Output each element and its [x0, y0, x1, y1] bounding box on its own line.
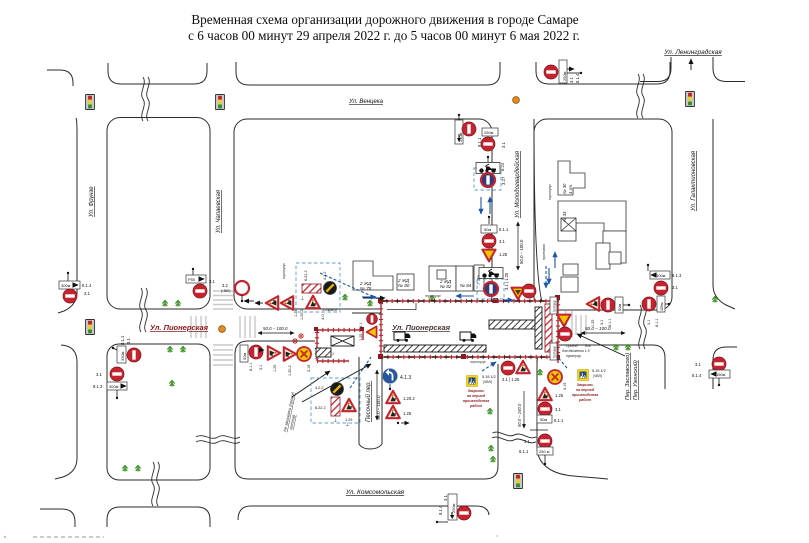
svg-text:№ 30: № 30: [562, 183, 567, 194]
svg-text:3.1: 3.1: [569, 77, 574, 83]
svg-text:Закрыть: Закрыть: [577, 383, 594, 387]
svg-text:Ул. Венцека: Ул. Венцека: [348, 99, 384, 105]
svg-text:50м: 50м: [242, 353, 247, 360]
svg-text:8.1.1: 8.1.1: [120, 335, 125, 345]
svg-text:Песочный пер.: Песочный пер.: [365, 381, 372, 422]
svg-text:5.19.1/2: 5.19.1/2: [592, 369, 606, 373]
svg-text:проезжая: проезжая: [542, 244, 546, 260]
svg-text:Ул. Комсомольская: Ул. Комсомольская: [345, 489, 405, 496]
svg-text:3.1: 3.1: [524, 439, 530, 444]
svg-text:⊥: ⊥: [300, 296, 304, 302]
svg-text:Ул. Пионерская: Ул. Пионерская: [150, 323, 209, 332]
svg-text:(ЧВЛ): (ЧВЛ): [593, 374, 602, 378]
svg-text:Ул. Чапаевская: Ул. Чапаевская: [216, 189, 222, 234]
svg-text:8.1.1: 8.1.1: [519, 449, 529, 454]
svg-text:работ: работ: [578, 398, 592, 402]
svg-text:тротуар: тротуар: [425, 294, 441, 298]
svg-text:производства: производства: [572, 393, 598, 397]
svg-text:50.0 – 100.0: 50.0 – 100.0: [585, 326, 611, 331]
svg-text:3.19: 3.19: [563, 383, 567, 390]
svg-text:1.20.2: 1.20.2: [403, 396, 415, 401]
svg-text:работ: работ: [469, 404, 483, 408]
svg-text:Закрыть: Закрыть: [468, 389, 485, 393]
svg-text:8.22.2: 8.22.2: [304, 270, 308, 281]
svg-text:8.1.1: 8.1.1: [655, 319, 659, 327]
svg-text:на период: на период: [576, 388, 595, 392]
svg-text:производства: производства: [463, 399, 489, 403]
svg-text:Пер. Уженский): Пер. Уженский): [632, 360, 639, 400]
svg-text:№ 78: № 78: [360, 286, 372, 291]
svg-text:8.22.2: 8.22.2: [315, 406, 326, 410]
svg-text:250м: 250м: [451, 503, 456, 513]
svg-text:⊥: ⊥: [345, 422, 349, 428]
svg-text:Проезд: Проезд: [566, 344, 578, 348]
svg-text:1.25: 1.25: [555, 393, 564, 398]
svg-text:300м: 300м: [109, 384, 119, 389]
svg-text:3.1: 3.1: [443, 495, 448, 501]
svg-text:50м: 50м: [540, 417, 547, 422]
svg-text:1.25: 1.25: [294, 310, 298, 317]
svg-text:1.25: 1.25: [403, 411, 412, 416]
svg-text:(ЧВЛ): (ЧВЛ): [483, 380, 492, 384]
svg-text:тротуар: тротуар: [566, 354, 581, 358]
svg-text:⊥: ⊥: [333, 418, 337, 424]
svg-text:Временная схема организации до: Временная схема организации дорожного дв…: [191, 12, 578, 27]
svg-text:8.1.1: 8.1.1: [554, 418, 564, 423]
svg-text:3.1: 3.1: [209, 279, 215, 284]
svg-text:3.2: 3.2: [222, 283, 228, 288]
svg-text:Ул. Фрунзе: Ул. Фрунзе: [89, 186, 95, 218]
svg-text:с 6 часов 00 минут 29 апреля 2: с 6 часов 00 минут 29 апреля 2022 г. до …: [188, 28, 580, 43]
svg-text:1.25: 1.25: [322, 308, 329, 312]
svg-text:4 эт.: 4 эт.: [568, 184, 573, 194]
svg-text:50м: 50м: [617, 304, 622, 311]
svg-text:3.1 | 1.25: 3.1 | 1.25: [502, 377, 520, 382]
svg-text:8.1.4: 8.1.4: [692, 373, 702, 378]
svg-text:тротуар: тротуар: [282, 263, 286, 279]
svg-text:Ул. Галактионовская: Ул. Галактионовская: [691, 150, 697, 212]
svg-text:250м: 250м: [562, 71, 567, 81]
svg-text:тротуар: тротуар: [553, 346, 557, 358]
svg-text:№ 33: № 33: [562, 211, 567, 222]
svg-text:тротуар: тротуар: [470, 360, 486, 364]
svg-text:8.1.3: 8.1.3: [93, 384, 103, 389]
svg-text:3.1: 3.1: [126, 338, 131, 344]
svg-text:Ул. Ленинградская: Ул. Ленинградская: [663, 48, 722, 56]
svg-text:4.0: 4.0: [320, 314, 325, 320]
svg-text:3.1: 3.1: [672, 285, 678, 290]
svg-text:Ул. Пионерская: Ул. Пионерская: [392, 323, 451, 332]
svg-text:300м: 300м: [61, 283, 71, 288]
svg-text:3.19: 3.19: [307, 365, 311, 372]
svg-text:3.1: 3.1: [647, 320, 651, 325]
svg-text:4.2.2: 4.2.2: [323, 272, 327, 280]
svg-text:4.2.2: 4.2.2: [315, 386, 323, 390]
svg-text:50.0 – 100.0: 50.0 – 100.0: [263, 326, 288, 331]
svg-text:№ 82: № 82: [440, 284, 452, 289]
svg-text:300м: 300м: [656, 273, 666, 278]
svg-text:на период: на период: [467, 394, 486, 398]
svg-text:1.25: 1.25: [273, 365, 277, 372]
svg-text:8.1.4: 8.1.4: [82, 283, 92, 288]
svg-text:50.0 – 150.0: 50.0 – 150.0: [517, 403, 522, 427]
svg-text:газон: газон: [328, 308, 337, 312]
svg-text:8.1.3: 8.1.3: [672, 273, 682, 278]
svg-text:1.20.2: 1.20.2: [288, 365, 292, 376]
svg-text:1.25: 1.25: [359, 334, 363, 341]
svg-text:8.1.4: 8.1.4: [438, 505, 443, 515]
svg-text:8.1.1: 8.1.1: [499, 227, 509, 232]
svg-text:3.1: 3.1: [501, 142, 506, 148]
svg-text:3.1: 3.1: [555, 407, 561, 412]
svg-text:(ЧВЛ): (ЧВЛ): [221, 289, 231, 293]
svg-text:3.27: 3.27: [501, 176, 506, 185]
svg-text:для движения 1,5: для движения 1,5: [562, 349, 590, 353]
svg-text:тротуар: тротуар: [553, 300, 557, 312]
svg-text:тротуар: тротуар: [548, 184, 552, 200]
svg-text:для: для: [585, 344, 591, 348]
svg-text:1.25: 1.25: [499, 252, 508, 257]
svg-text:150м: 150м: [716, 372, 726, 377]
svg-text:50м: 50м: [484, 227, 491, 232]
svg-text:3.1: 3.1: [499, 239, 505, 244]
svg-text:3.1: 3.1: [96, 372, 102, 377]
svg-text:3.1: 3.1: [259, 365, 263, 370]
svg-text:50.0 – 100.0: 50.0 – 100.0: [519, 239, 524, 264]
svg-text:3.1: 3.1: [695, 362, 701, 367]
svg-text:3.1: 3.1: [600, 320, 604, 325]
svg-text:4.1.3: 4.1.3: [400, 375, 411, 381]
svg-text:8.1.1: 8.1.1: [249, 363, 253, 371]
svg-text:8.1.4: 8.1.4: [575, 73, 580, 83]
svg-text:3.1: 3.1: [84, 291, 90, 296]
svg-text:1.20.2: 1.20.2: [300, 309, 304, 320]
svg-text:Пер. Заславского): Пер. Заславского): [625, 353, 631, 400]
svg-text:8.24: 8.24: [500, 162, 505, 171]
svg-text:250м: 250м: [484, 130, 494, 135]
svg-text:3.1: 3.1: [359, 323, 363, 328]
svg-text:№ 84: № 84: [460, 283, 472, 288]
svg-text:№ 80: № 80: [398, 283, 410, 288]
svg-text:330м: 330м: [120, 351, 125, 361]
svg-text:Ул. Молодогвардейская: Ул. Молодогвардейская: [514, 150, 521, 219]
svg-text:250 м: 250 м: [539, 449, 550, 454]
svg-text:50.0 – 100.0: 50.0 – 100.0: [376, 395, 381, 420]
svg-text:3.1 | 1.25: 3.1 | 1.25: [504, 272, 509, 290]
svg-text:150м: 150м: [660, 302, 664, 311]
svg-text:Р50: Р50: [188, 277, 196, 282]
svg-text:5.19.1/2: 5.19.1/2: [482, 375, 496, 379]
